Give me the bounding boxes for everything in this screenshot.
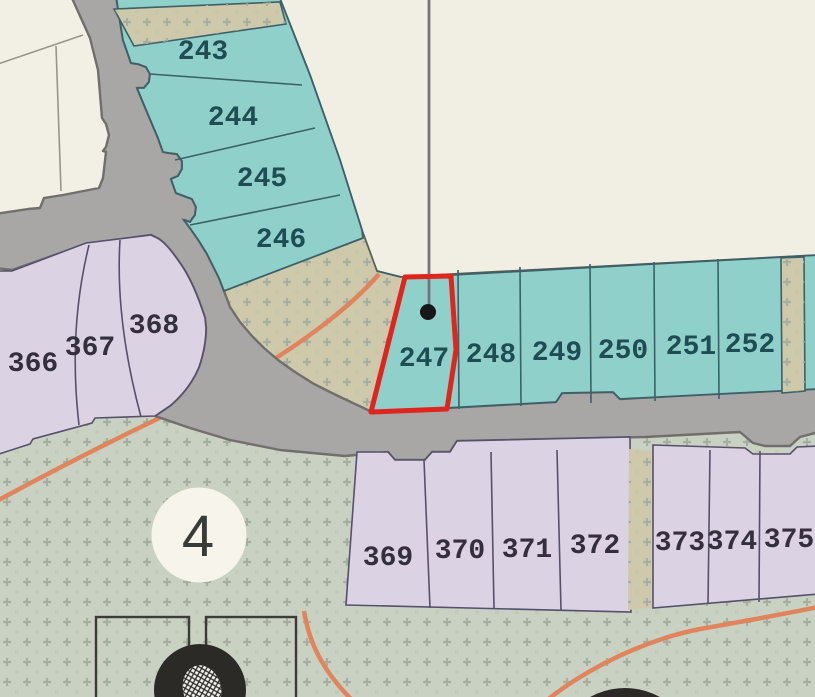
svg-text:247: 247	[399, 344, 449, 375]
svg-text:243: 243	[178, 37, 228, 68]
svg-text:249: 249	[532, 338, 582, 369]
svg-text:373: 373	[655, 528, 705, 559]
svg-text:372: 372	[570, 531, 620, 562]
svg-text:252: 252	[725, 330, 775, 361]
svg-text:4: 4	[182, 504, 214, 569]
svg-text:371: 371	[502, 535, 552, 566]
svg-text:244: 244	[208, 103, 258, 134]
svg-text:246: 246	[256, 225, 306, 256]
svg-text:374: 374	[707, 527, 757, 558]
svg-text:245: 245	[237, 164, 287, 195]
svg-text:250: 250	[598, 336, 648, 367]
svg-text:251: 251	[666, 332, 716, 363]
svg-text:370: 370	[435, 536, 485, 567]
svg-text:367: 367	[65, 333, 115, 364]
svg-text:368: 368	[129, 311, 179, 342]
svg-text:366: 366	[8, 349, 58, 380]
svg-text:369: 369	[363, 543, 413, 574]
svg-text:248: 248	[466, 340, 516, 371]
svg-text:375: 375	[764, 525, 814, 556]
